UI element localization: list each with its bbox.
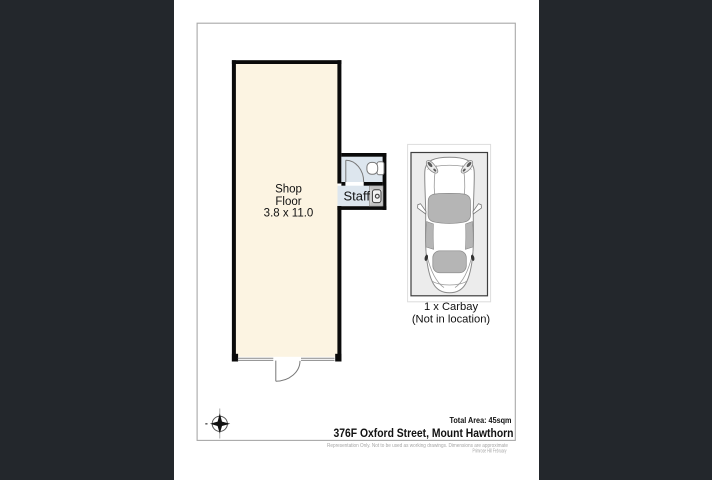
svg-text:Floor: Floor	[275, 196, 301, 208]
svg-text:376F Oxford Street, Mount Hawt: 376F Oxford Street, Mount Hawthorn	[334, 426, 514, 440]
svg-text:Shop: Shop	[275, 184, 302, 196]
svg-text:Staff: Staff	[344, 189, 371, 204]
svg-text:(Not in location): (Not in location)	[412, 313, 491, 325]
svg-text:Primrose Hill February: Primrose Hill February	[473, 449, 507, 455]
svg-text:1 x Carbay: 1 x Carbay	[424, 301, 479, 313]
svg-text:Total Area: 45sqm: Total Area: 45sqm	[450, 415, 512, 425]
svg-text:3.8 x 11.0: 3.8 x 11.0	[264, 208, 314, 220]
